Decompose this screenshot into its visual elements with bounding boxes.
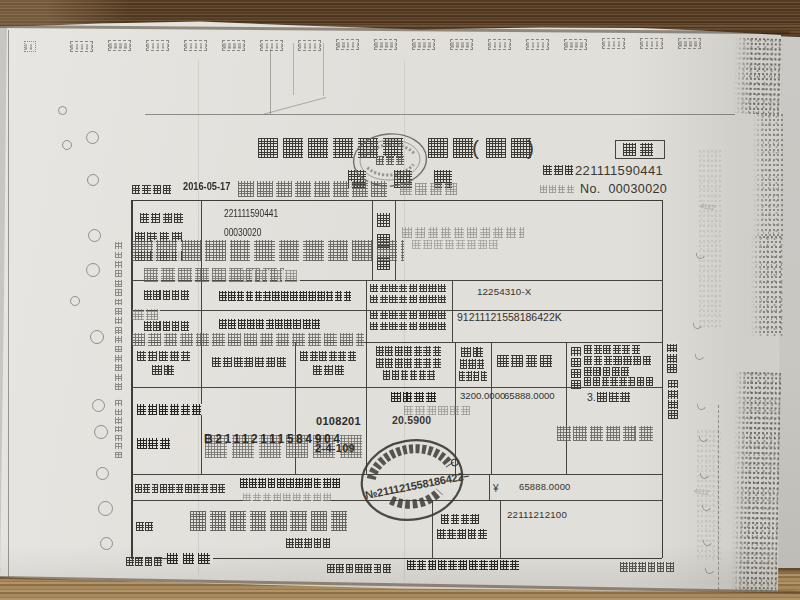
svg-text:№211121558186422–: №211121558186422–	[364, 469, 470, 501]
